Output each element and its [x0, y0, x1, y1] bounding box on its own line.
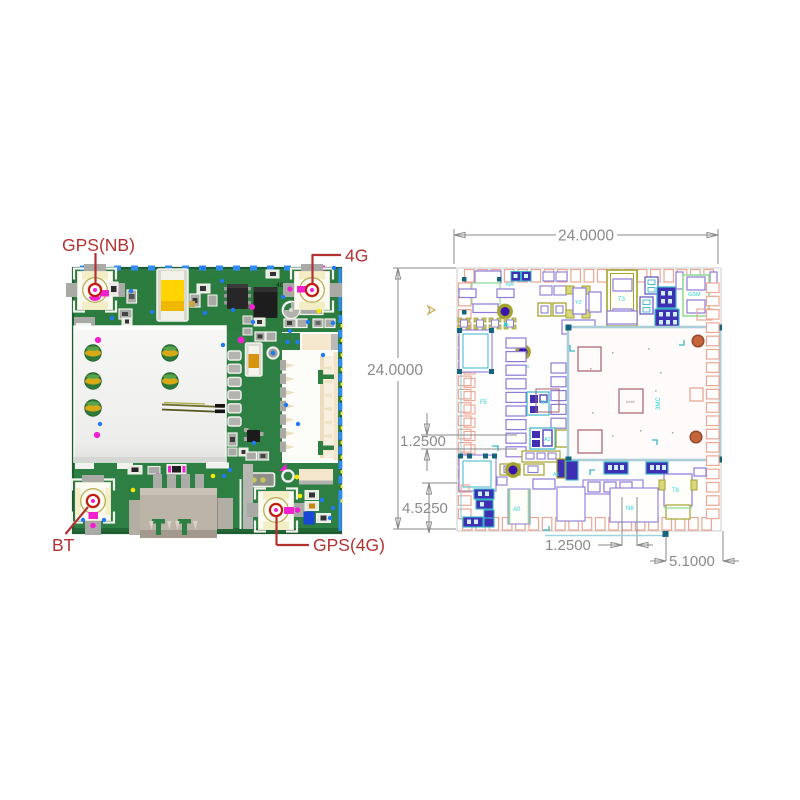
svg-text:1.2500: 1.2500: [400, 433, 446, 450]
svg-text:Y2: Y2: [575, 300, 582, 306]
svg-text:3MC: 3MC: [656, 397, 662, 410]
svg-text:GPS(4G): GPS(4G): [313, 535, 385, 555]
svg-text:T6: T6: [672, 488, 680, 494]
svg-text:NA: NA: [506, 282, 514, 288]
svg-text:4G: 4G: [345, 246, 368, 266]
svg-text:5.1000: 5.1000: [669, 553, 715, 570]
svg-text:E6: E6: [541, 400, 548, 406]
svg-text:N8: N8: [626, 506, 634, 512]
svg-text:GPS(NB): GPS(NB): [62, 235, 135, 255]
svg-text:F5: F5: [480, 400, 488, 406]
svg-text:A2: A2: [544, 437, 551, 443]
svg-text:####: ####: [626, 399, 636, 404]
svg-text:24.0000: 24.0000: [558, 228, 614, 245]
svg-text:BT: BT: [52, 535, 75, 555]
svg-text:A6: A6: [553, 472, 559, 478]
svg-text:GSM: GSM: [688, 292, 701, 298]
svg-text:T3: T3: [618, 297, 626, 303]
svg-text:4.5250: 4.5250: [402, 500, 448, 517]
svg-text:24.0000: 24.0000: [367, 362, 423, 379]
svg-text:1.2500: 1.2500: [545, 537, 591, 554]
svg-text:A0: A0: [513, 507, 521, 513]
